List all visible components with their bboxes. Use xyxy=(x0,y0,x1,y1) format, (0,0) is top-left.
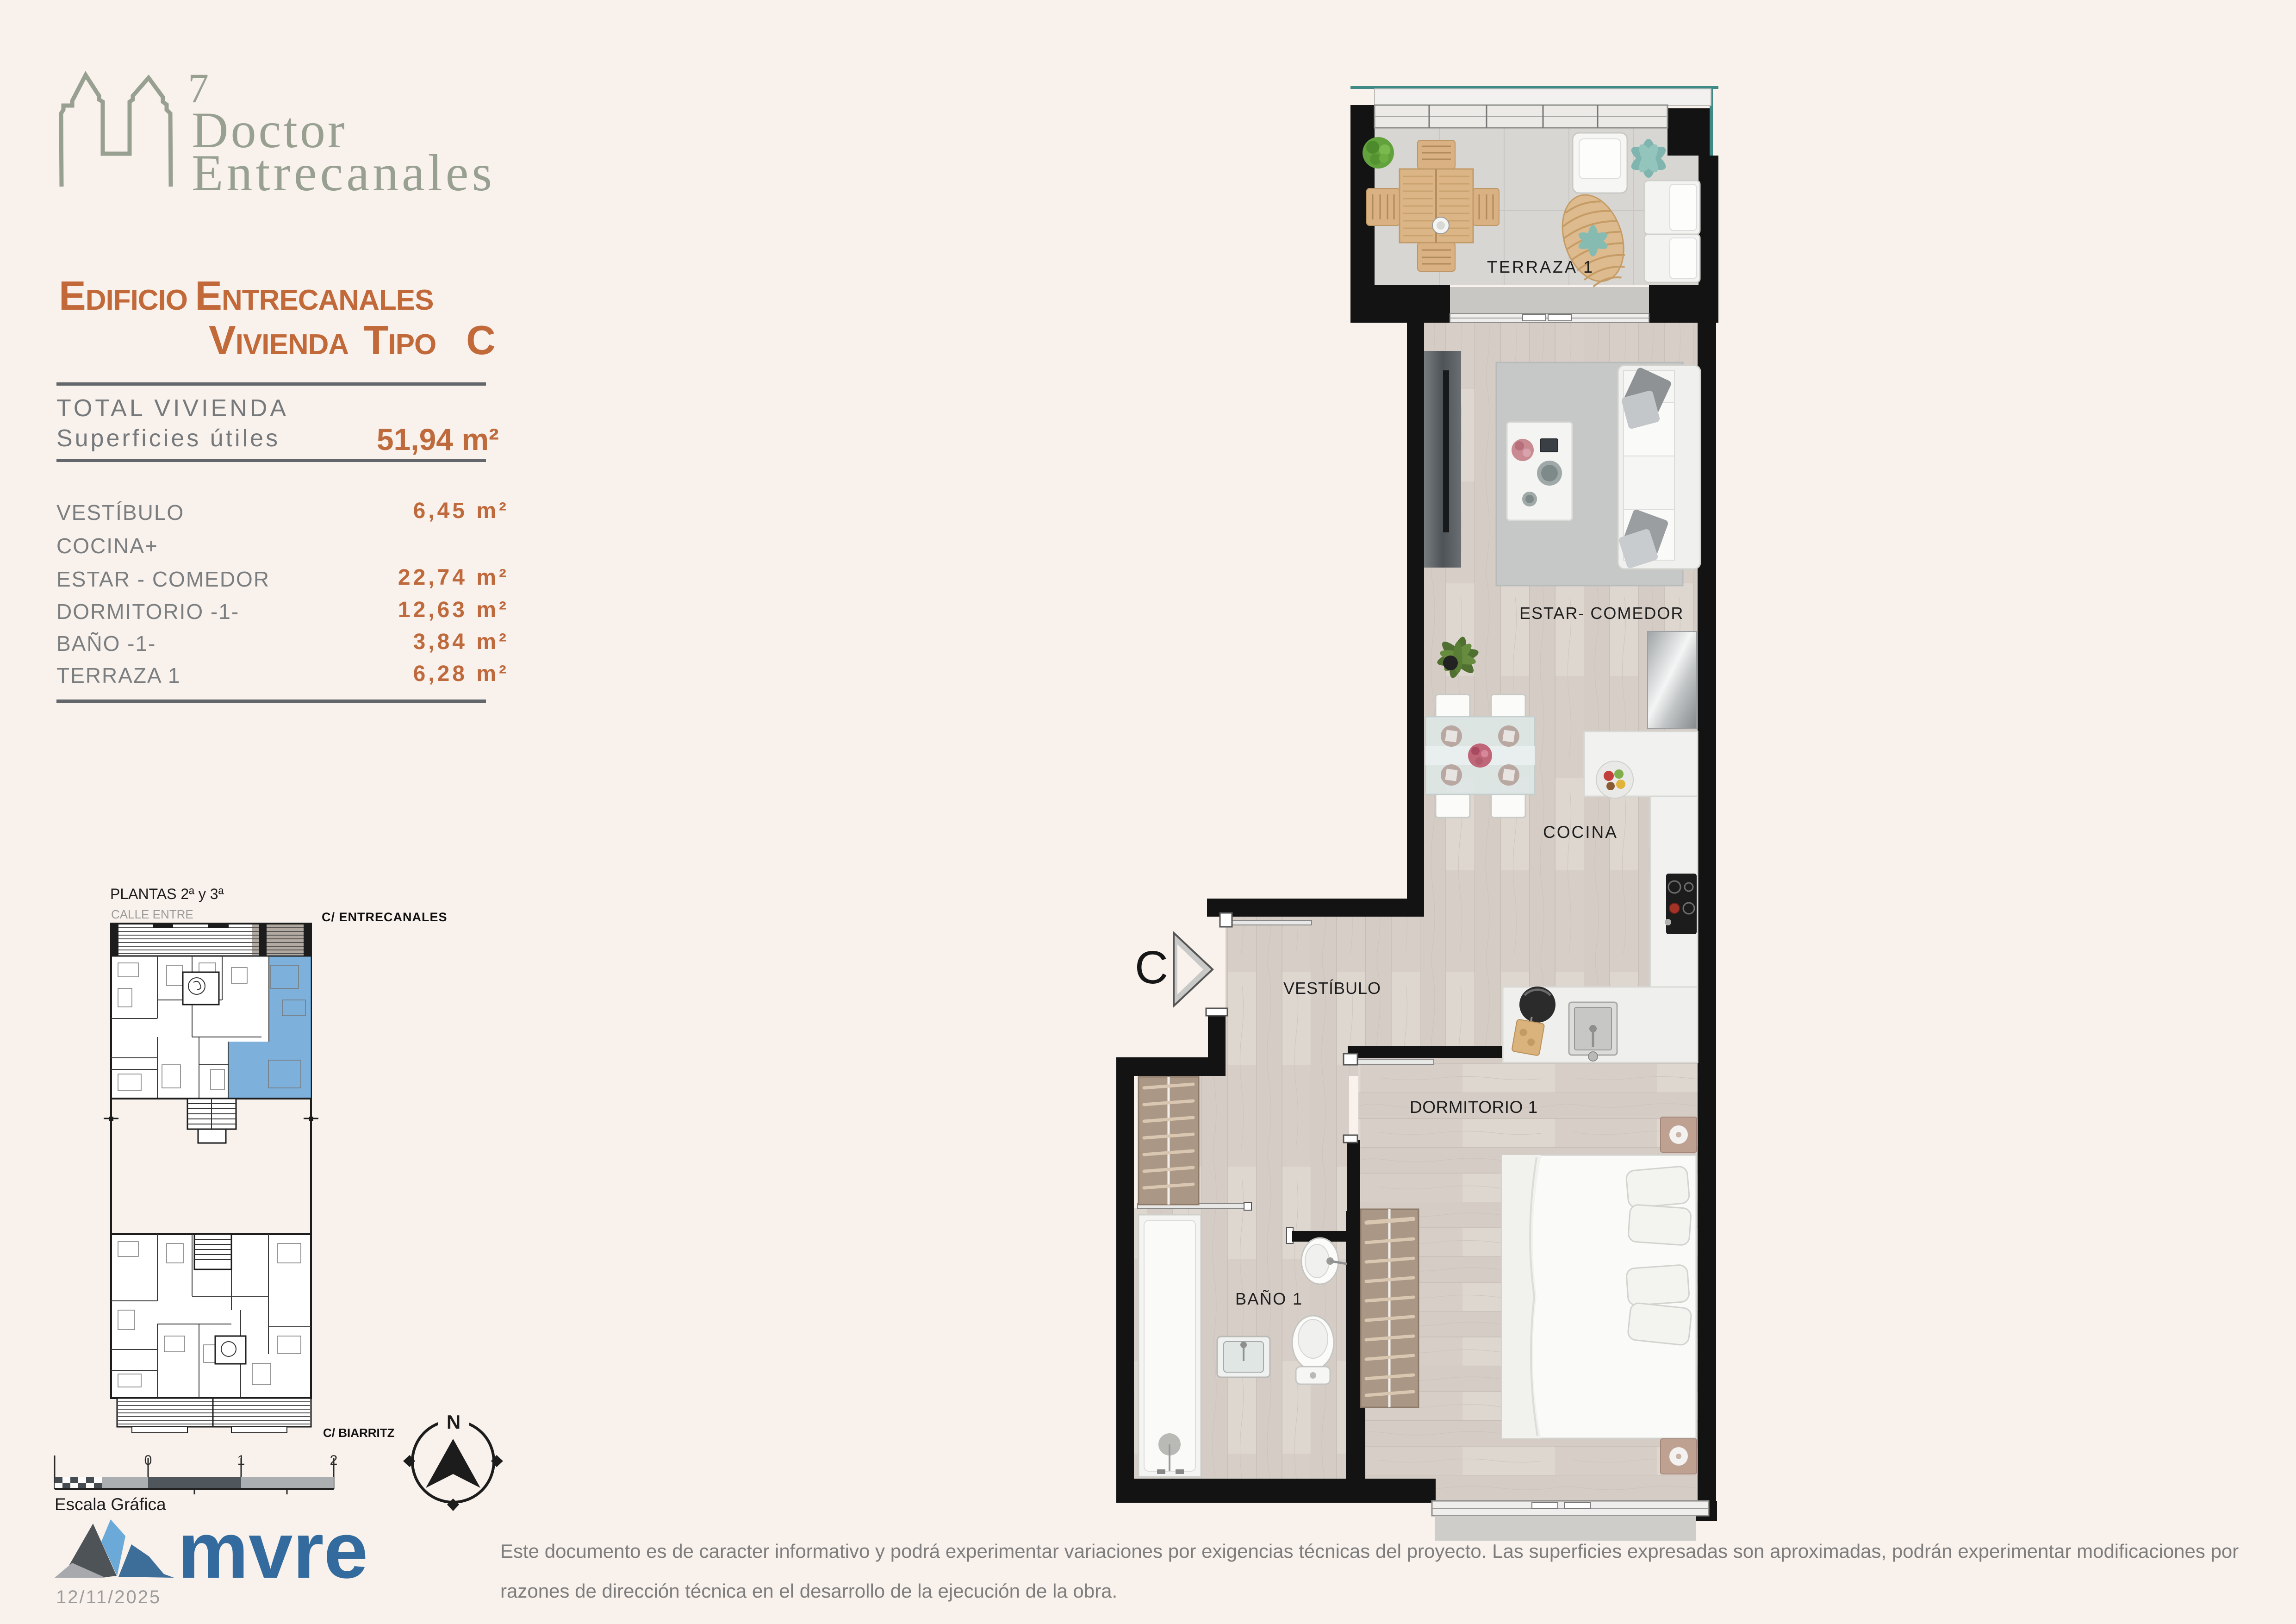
svg-text:PLANTAS 2ª y 3ª: PLANTAS 2ª y 3ª xyxy=(110,886,224,902)
svg-text:BAÑO 1: BAÑO 1 xyxy=(1235,1289,1303,1308)
svg-text:C/ BIARRITZ: C/ BIARRITZ xyxy=(323,1426,395,1440)
svg-text:mvre: mvre xyxy=(178,1518,368,1595)
svg-text:COCINA: COCINA xyxy=(1543,823,1618,842)
svg-text:DORMITORIO 1: DORMITORIO 1 xyxy=(1410,1098,1538,1117)
svg-text:C/ ENTRECANALES: C/ ENTRECANALES xyxy=(322,910,448,924)
svg-text:ESTAR- COMEDOR: ESTAR- COMEDOR xyxy=(1519,604,1684,623)
svg-text:1: 1 xyxy=(237,1453,245,1468)
svg-text:TERRAZA 1: TERRAZA 1 xyxy=(1487,257,1594,276)
svg-text:0: 0 xyxy=(144,1453,152,1468)
svg-text:N: N xyxy=(447,1411,460,1433)
svg-text:Escala Gráfica: Escala Gráfica xyxy=(55,1495,166,1514)
svg-text:C: C xyxy=(1135,942,1168,993)
svg-text:CALLE ENTRE: CALLE ENTRE xyxy=(111,907,193,921)
svg-text:VESTÍBULO: VESTÍBULO xyxy=(1283,979,1381,998)
svg-text:2: 2 xyxy=(330,1453,338,1468)
